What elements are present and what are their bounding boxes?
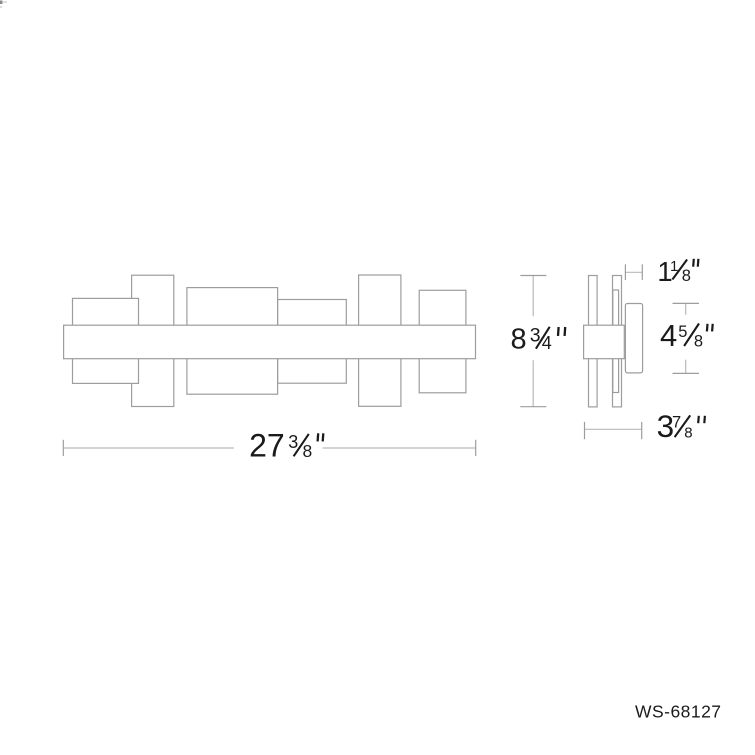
svg-text:8: 8 (682, 267, 691, 285)
svg-text:8: 8 (511, 323, 527, 355)
svg-text:4: 4 (660, 318, 677, 353)
svg-text:4: 4 (542, 333, 552, 353)
svg-text:3: 3 (288, 432, 298, 452)
svg-text:WS-68127: WS-68127 (635, 701, 721, 721)
svg-text:8: 8 (684, 425, 692, 442)
svg-text:8: 8 (303, 441, 313, 461)
svg-text:5: 5 (678, 323, 687, 341)
svg-text:27: 27 (249, 427, 285, 463)
svg-text:8: 8 (694, 333, 703, 351)
